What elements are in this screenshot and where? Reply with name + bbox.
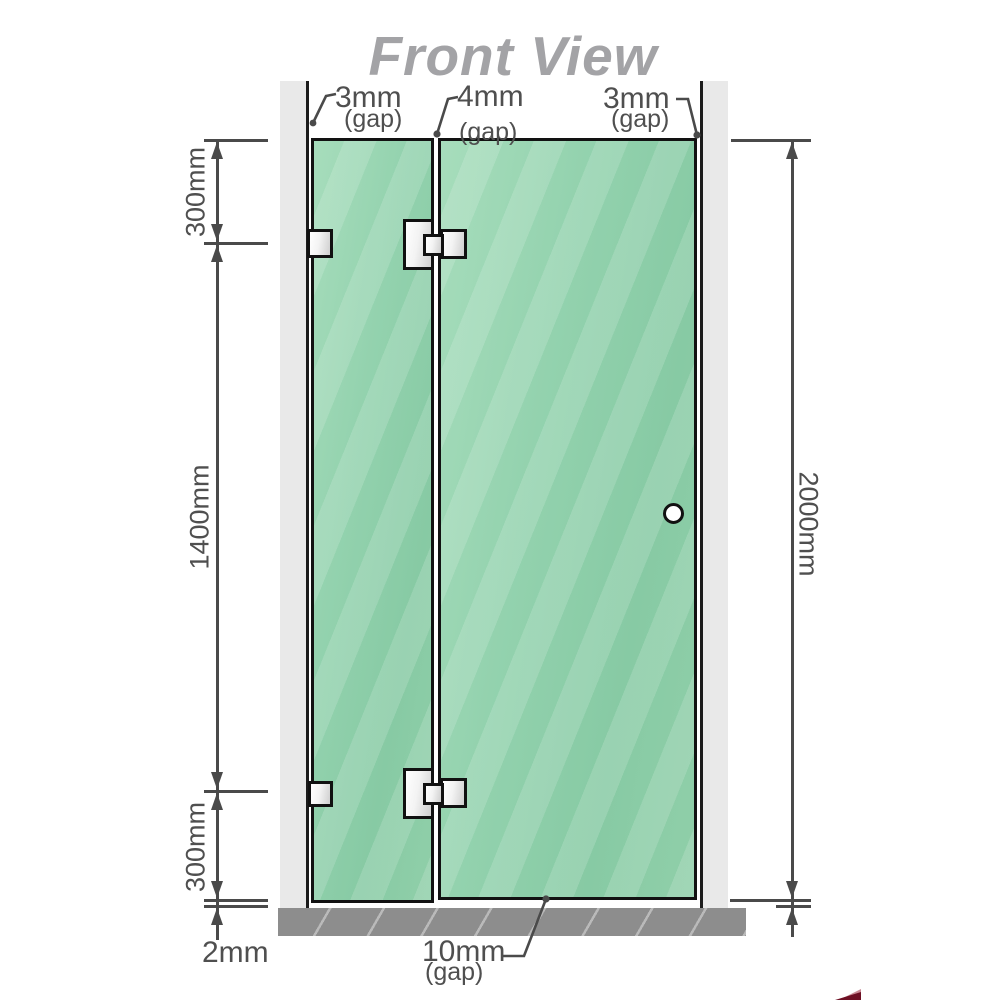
gap-label-top-middle-suffix: (gap) — [459, 120, 517, 145]
gap-label-top-middle-value: 4mm — [457, 82, 524, 112]
gap-label-top-left-suffix: (gap) — [344, 107, 402, 132]
corner-accent-red — [835, 992, 861, 1000]
shower-screen-front-view-diagram: Front View 300mm 1400mm — [0, 0, 1000, 1000]
leader-lines — [0, 0, 1000, 1000]
gap-label-top-right-suffix: (gap) — [611, 107, 669, 132]
floor-offset-label-2mm: 2mm — [202, 938, 269, 968]
door-gap-label-suffix: (gap) — [425, 960, 483, 985]
